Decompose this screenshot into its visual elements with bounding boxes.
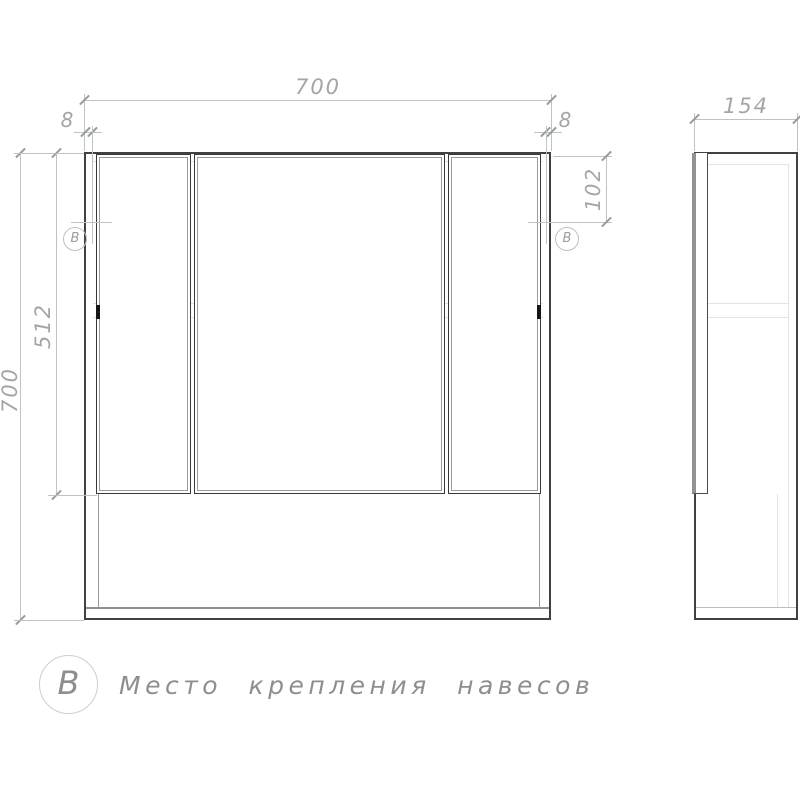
ext-line <box>14 620 84 621</box>
dim-line-left-gap <box>74 132 102 133</box>
technical-drawing: 700 8 8 B B 102 512 <box>0 0 800 800</box>
mirror-door-left <box>96 154 191 494</box>
side-door-profile <box>692 153 708 494</box>
ext-line <box>84 94 85 151</box>
side-lower-line <box>777 494 778 607</box>
hinge-marker-right: B <box>555 227 579 251</box>
bottom-side-wall-right <box>539 494 540 608</box>
dim-depth-label: 154 <box>716 95 776 117</box>
dim-width-label: 700 <box>288 76 348 98</box>
ext-line <box>14 153 84 154</box>
dim-line-width <box>84 100 552 101</box>
dim-line-depth <box>694 119 798 120</box>
dim-right-gap-label: 8 <box>556 109 576 131</box>
legend-marker-circle: B <box>39 655 98 714</box>
side-cabinet-outline <box>694 152 798 620</box>
side-shelf-line-bottom <box>708 317 788 318</box>
dim-line-hinge-offset <box>606 156 607 223</box>
dim-hinge-offset-label: 102 <box>582 161 602 217</box>
dim-left-gap-label: 8 <box>58 109 78 131</box>
bottom-panel-line <box>86 607 549 609</box>
hinge-cross-left <box>71 222 112 223</box>
bottom-side-wall-left <box>98 494 99 608</box>
hinge-locator-line-left <box>92 126 93 244</box>
ext-line <box>48 495 97 496</box>
mirror-door-right <box>448 154 541 494</box>
side-bottom-panel-line <box>696 607 796 608</box>
side-shelf-line-top <box>708 303 788 304</box>
dim-line-door-height <box>56 153 57 496</box>
mirror-door-center <box>194 154 445 494</box>
dim-door-height-label: 512 <box>32 298 52 354</box>
hinge-cross-right <box>528 222 612 223</box>
side-back-panel-line <box>788 164 789 607</box>
hinge-marker-left: B <box>63 227 87 251</box>
dim-height-label: 700 <box>0 360 21 420</box>
legend-caption: Место крепления навесов <box>119 671 594 700</box>
hinge-bar-left <box>96 305 100 319</box>
hinge-locator-line-right <box>546 126 547 244</box>
side-top-panel-line <box>708 164 788 165</box>
ext-line <box>551 94 552 151</box>
hinge-bar-right <box>537 305 541 319</box>
